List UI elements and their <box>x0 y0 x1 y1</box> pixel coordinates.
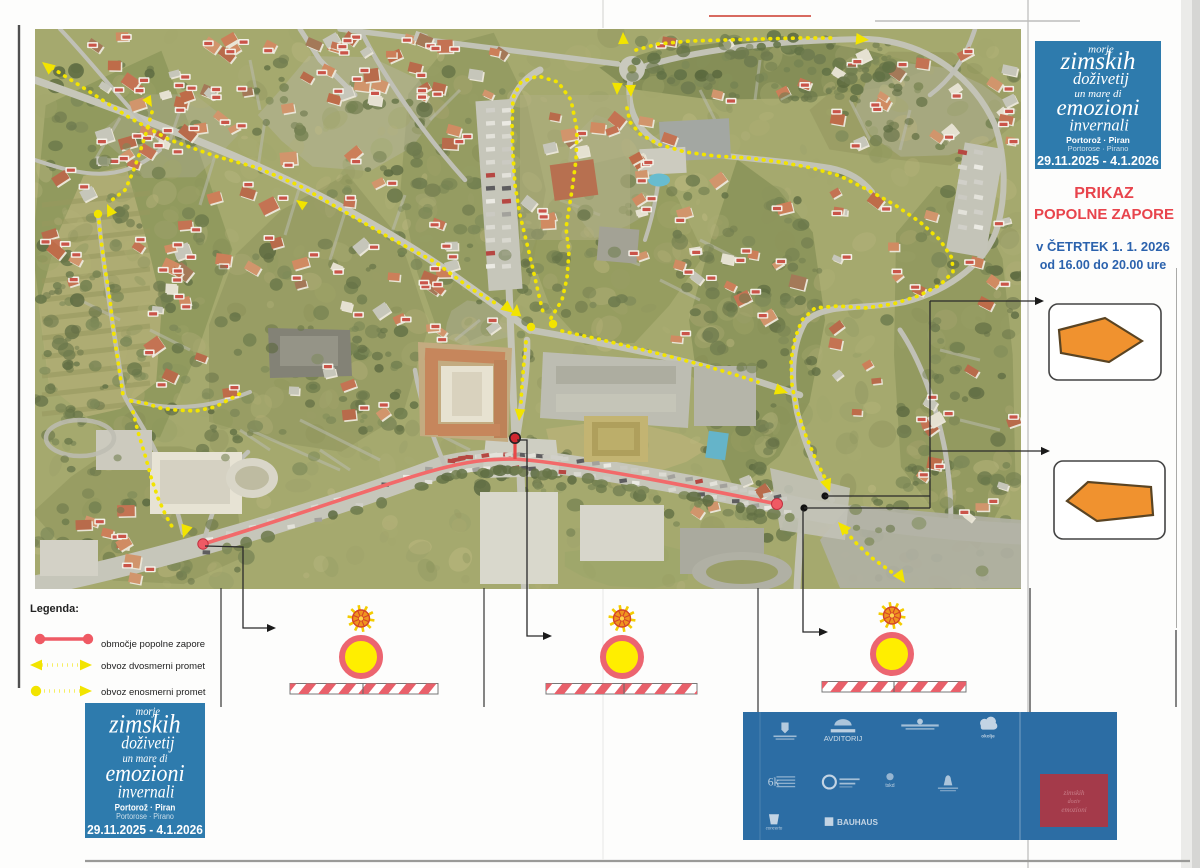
svg-text:AVDITORIJ: AVDITORIJ <box>824 734 863 743</box>
svg-text:emozioni: emozioni <box>1061 806 1086 814</box>
svg-text:okolje: okolje <box>981 734 995 739</box>
svg-text:POPOLNE ZAPORE: POPOLNE ZAPORE <box>1034 206 1174 223</box>
svg-text:v ČETRTEK 1. 1. 2026: v ČETRTEK 1. 1. 2026 <box>1036 239 1170 254</box>
svg-text:invernali: invernali <box>118 782 175 802</box>
svg-text:tskd: tskd <box>885 783 894 789</box>
svg-text:obvoz dvosmerni promet: obvoz dvosmerni promet <box>101 661 205 672</box>
svg-text:zimskih: zimskih <box>1063 789 1086 797</box>
svg-text:doziv: doziv <box>1068 799 1081 805</box>
svg-text:invernali: invernali <box>1069 116 1129 135</box>
svg-text:29.11.2025 - 4.1.2026: 29.11.2025 - 4.1.2026 <box>1037 154 1159 168</box>
svg-text:doživetij: doživetij <box>1073 69 1129 88</box>
svg-text:doživetij: doživetij <box>121 733 175 753</box>
svg-text:BAUHAUS: BAUHAUS <box>837 818 878 827</box>
svg-text:od 16.00 do 20.00 ure: od 16.00 do 20.00 ure <box>1040 258 1166 272</box>
svg-text:območje popolne zapore: območje popolne zapore <box>101 639 205 650</box>
svg-text:PRIKAZ: PRIKAZ <box>1074 185 1134 202</box>
svg-text:Legenda:: Legenda: <box>30 603 79 615</box>
svg-text:Portorose · Pirano: Portorose · Pirano <box>116 812 174 821</box>
svg-text:obvoz enosmerni promet: obvoz enosmerni promet <box>101 687 206 698</box>
svg-text:29.11.2025 - 4.1.2026: 29.11.2025 - 4.1.2026 <box>87 822 203 837</box>
svg-text:concerto: concerto <box>766 825 783 830</box>
svg-text:Portorose · Pirano: Portorose · Pirano <box>1068 144 1129 153</box>
